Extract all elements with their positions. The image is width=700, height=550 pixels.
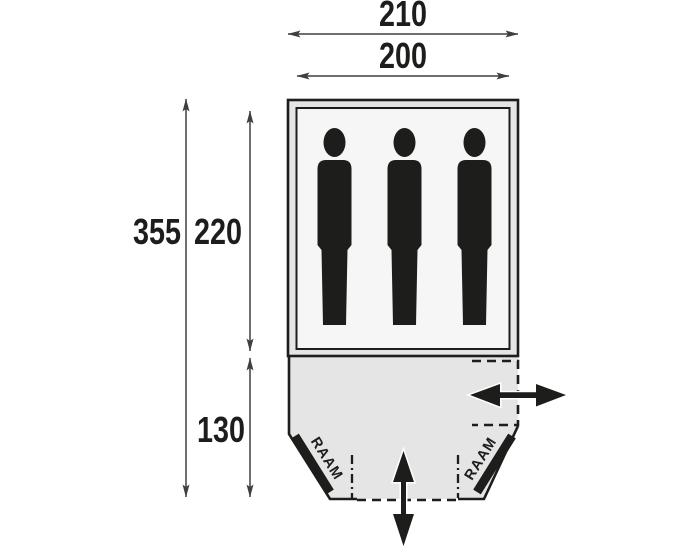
sleeping-area <box>288 100 518 356</box>
dim-label-total-length: 355 <box>133 211 181 252</box>
tent-floorplan-svg: RAAM RAAM 210 200 355 220 <box>0 0 700 550</box>
tent-floorplan: RAAM RAAM 210 200 355 220 <box>0 0 700 550</box>
dim-label-outer-width: 210 <box>379 0 427 34</box>
dim-label-porch-length: 130 <box>197 409 245 450</box>
dim-label-sleeping-length: 220 <box>194 211 242 252</box>
dim-label-inner-width: 200 <box>379 35 427 76</box>
